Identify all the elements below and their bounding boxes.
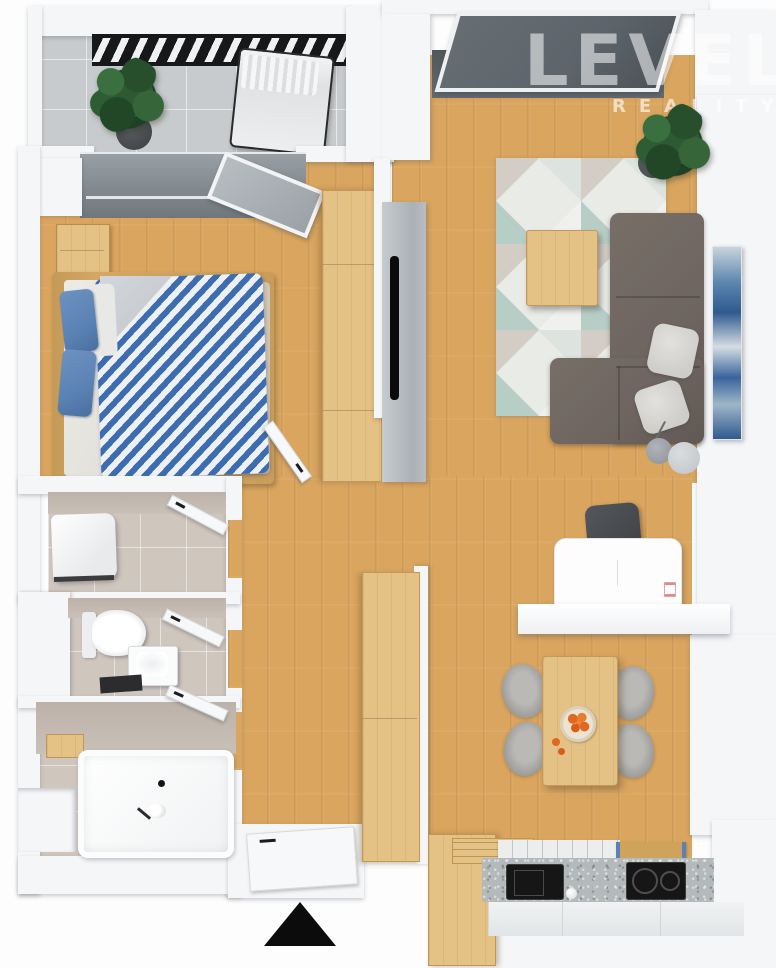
kitchen-cabinet-front [488,902,744,936]
bedroom-wardrobe-seam-2 [323,410,379,411]
bedroom-wardrobe [322,190,382,482]
cooktop-burner-right [660,871,680,891]
washing-machine [51,513,117,581]
desk-shelf [518,604,730,634]
nightstand-top-seam [60,250,104,251]
white-chair-logo [664,582,676,597]
fruit-loose-2 [558,748,565,755]
tv-screen [390,256,399,400]
wc-left-shaft [18,592,70,702]
floor-lamp-globe-large [668,442,700,474]
tv-panel [382,202,426,482]
kitchen-knob [566,888,577,899]
bed-pillow-blue-bottom [57,349,97,418]
hallway-wardrobe [362,572,420,862]
sofa-seam-1 [616,296,700,298]
hallway-wardrobe-seam [363,718,417,719]
bathtub-drain [158,780,165,787]
living-top-left-wall [382,14,430,160]
kitchen-cabinet-seam-1 [562,902,563,936]
outer-wall-right-lower [690,635,776,835]
balcony-top-wall [36,6,354,36]
living-plant [632,102,714,190]
laundry-door-opening [228,520,242,578]
floorplan-render: LEVEL REALITY [0,0,776,968]
fruit-oranges [565,711,591,737]
wall-art [712,246,742,440]
outer-wall-bottom-left [18,856,240,894]
kitchen-sink-basin [514,870,544,896]
fruit-loose-1 [552,738,560,746]
kitchen-cabinet-seam-2 [660,902,661,936]
balcony-left-wall [28,6,42,160]
bedroom-corner-block [38,158,82,216]
cooktop-burner-left [632,868,658,894]
bed-pillow-blue-top [59,288,99,353]
wc-floor-mat [99,675,142,694]
bedroom-wardrobe-seam-1 [323,264,379,265]
sofa-seam-3 [618,366,620,440]
bathtub-bottles [148,804,166,818]
wc-door-opening [228,630,242,688]
white-chair-seamline [617,560,618,586]
entrance-door [246,826,358,891]
north-arrow-icon [264,902,336,946]
watermark-logo: LEVEL [524,26,776,96]
coffee-table [526,230,598,306]
balcony-plant [86,56,168,142]
outer-wall-left [18,146,40,894]
bathroom-niche [18,788,76,852]
washbasin-bowl [136,652,168,676]
